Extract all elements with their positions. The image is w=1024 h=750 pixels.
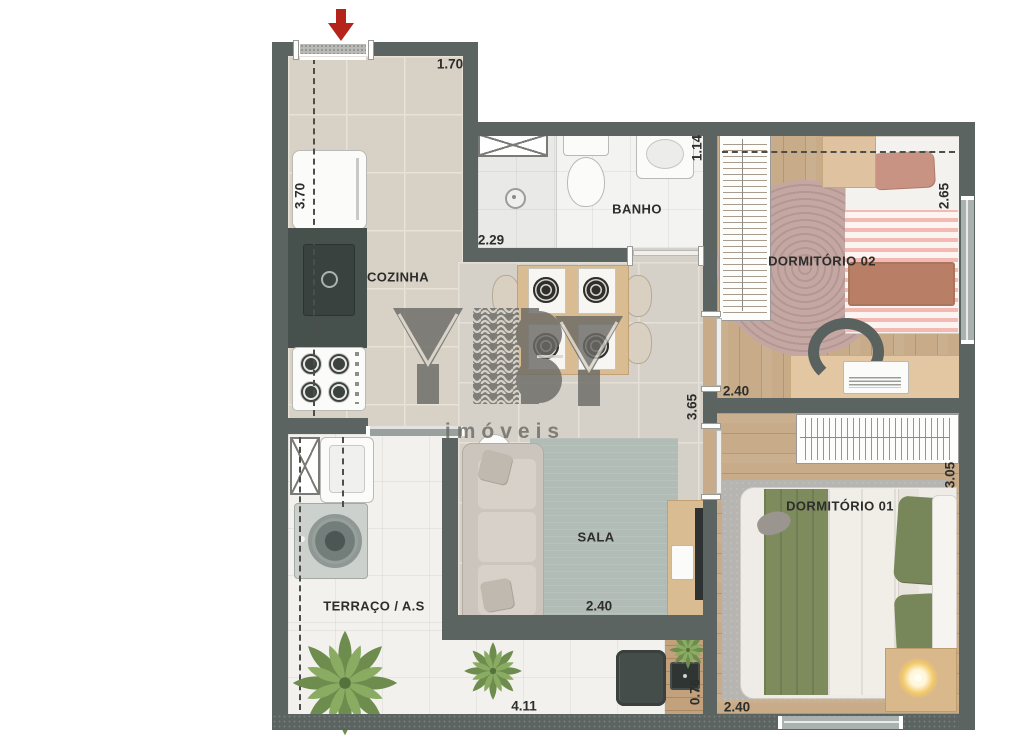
wardrobe-divider <box>742 139 743 311</box>
toilet-bowl <box>567 157 605 207</box>
dim-kitchen-bath: 2.29 <box>478 233 504 248</box>
door-jamb <box>368 40 374 60</box>
grill-knob <box>683 674 687 678</box>
bathroom-door-leaf <box>633 250 699 256</box>
door-jamb <box>701 386 721 392</box>
dim-dorm02-right: 2.65 <box>937 183 952 209</box>
wall-kitchen-terrace-stub <box>272 418 368 434</box>
dorm02-door-leaf <box>716 318 722 386</box>
dorm02-door-opening <box>703 315 717 387</box>
upper-cabinet-dashed-line <box>313 58 315 416</box>
stove-burner <box>328 381 350 403</box>
entrance-door <box>300 44 366 54</box>
duct-shaft <box>290 437 320 495</box>
stove-burner <box>300 381 322 403</box>
terrace-chair <box>616 650 666 706</box>
shower-head <box>505 188 526 209</box>
duct-shaft <box>478 133 548 157</box>
dorm01-door-opening <box>703 427 717 495</box>
toilet-tank <box>563 133 609 156</box>
watermark: imóveis <box>385 304 625 446</box>
door-jamb <box>701 494 721 500</box>
dim-sala-bottom: 2.40 <box>586 599 612 614</box>
wall-sofa <box>442 438 458 630</box>
door-jamb <box>627 246 633 266</box>
room-label-sala: SALA <box>578 530 615 545</box>
door-jamb <box>701 423 721 429</box>
entrance-swing-line <box>300 57 366 60</box>
wall-bath-left <box>463 133 478 262</box>
wall-bedroom-separator <box>717 398 960 413</box>
dim-dorm02-bottom: 2.40 <box>723 384 749 399</box>
lamp-center <box>914 674 922 682</box>
bed-throw <box>848 262 955 306</box>
plate <box>533 277 559 303</box>
watermark-text: imóveis <box>385 420 625 444</box>
laundry-sink-basin <box>329 445 365 493</box>
wardrobe-dorm01 <box>797 415 958 463</box>
dim-kitchen-top: 1.70 <box>437 57 463 72</box>
dorm01-door-leaf <box>716 430 722 494</box>
kitchen-faucet <box>321 271 338 288</box>
entrance-arrow-icon <box>326 8 356 44</box>
dim-dorm01-right: 3.05 <box>943 462 958 488</box>
fridge-handle <box>356 158 359 220</box>
bed-pillow <box>871 150 935 189</box>
plate <box>583 277 609 303</box>
shower-drain <box>512 195 516 199</box>
small-plant <box>462 640 524 702</box>
wall-top-right <box>463 122 975 136</box>
stove-burner <box>300 353 322 375</box>
room-label-cozinha: COZINHA <box>367 270 429 285</box>
stove-knobs <box>355 352 359 404</box>
room-label-terraco: TERRAÇO / A.S <box>323 599 425 614</box>
sofa-pillow <box>480 578 515 613</box>
dim-deck-width: 0.76 <box>688 679 703 705</box>
door-jamb <box>293 40 299 60</box>
dorm02-window-glass <box>966 200 968 340</box>
media-device <box>671 545 694 580</box>
sofa-cushion <box>478 512 536 562</box>
bathroom-sink-basin <box>646 139 684 169</box>
laptop-keyboard <box>849 377 901 388</box>
head-shelf <box>822 136 876 188</box>
room-label-banho: BANHO <box>612 202 662 217</box>
dorm01-window-frame <box>778 716 782 729</box>
dim-dorm01-bottom: 2.40 <box>724 700 750 715</box>
door-jamb <box>698 246 704 266</box>
door-jamb <box>701 311 721 317</box>
dim-terrace-bottom: 4.11 <box>511 699 537 714</box>
dim-kitchen-left: 3.70 <box>293 183 308 209</box>
dorm01-window-glass <box>784 721 899 723</box>
wardrobe-dorm02 <box>720 136 770 320</box>
washer-drum <box>308 514 362 568</box>
dorm02-dashed-line <box>722 151 955 153</box>
room-label-dorm01: DORMITÓRIO 01 <box>786 499 894 514</box>
laundry-dashed-line <box>342 437 344 507</box>
floor-plan: COZINHA BANHO SALA TERRAÇO / A.S DORMITÓ… <box>0 0 1024 750</box>
stove-burner <box>328 353 350 375</box>
dim-bath-right: 1.14 <box>690 135 705 161</box>
dorm02-window-frame <box>961 340 974 344</box>
dim-sala-right: 3.65 <box>685 394 700 420</box>
watermark-logo-ybi <box>385 304 625 408</box>
wall-left <box>272 42 288 730</box>
dorm01-window-frame <box>899 716 903 729</box>
wardrobe-divider <box>800 437 949 438</box>
wall-sala-bottom <box>442 615 710 640</box>
room-label-dorm02: DORMITÓRIO 02 <box>768 254 876 269</box>
